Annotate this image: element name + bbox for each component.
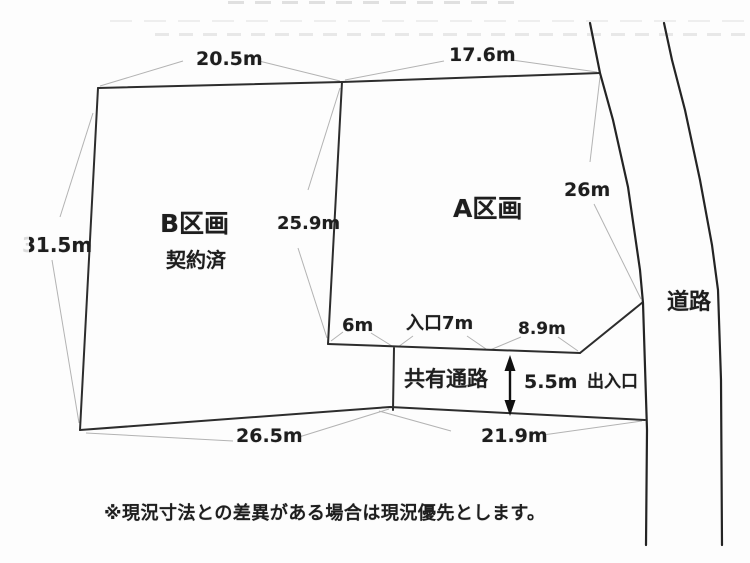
plot-linework bbox=[0, 0, 750, 563]
parcel-a-top-edge bbox=[342, 73, 600, 82]
leader-6m-right bbox=[371, 333, 392, 346]
leader-26-upper bbox=[590, 77, 600, 162]
leader-8-9-right bbox=[558, 337, 578, 351]
dim-ab-boundary: 25.9m bbox=[277, 215, 340, 233]
leader-entrance-left bbox=[398, 336, 413, 347]
leader-21-9-right bbox=[543, 421, 642, 435]
leader-26-lower bbox=[594, 204, 641, 299]
dim-passage-bottom: 21.9m bbox=[481, 427, 548, 446]
leader-25-9-lower bbox=[298, 248, 327, 338]
leader-31-5-upper bbox=[60, 113, 93, 217]
leader-8-9-left bbox=[490, 337, 521, 350]
leader-31-5-lower bbox=[52, 260, 79, 423]
bottom-boundary bbox=[80, 407, 645, 430]
passage-left-edge bbox=[393, 348, 394, 410]
road-line-right bbox=[664, 23, 722, 545]
parcel-a-bottom-edge bbox=[328, 344, 580, 353]
footnote: ※現況寸法との差異がある場合は現況優先とします。 bbox=[104, 505, 546, 523]
leader-17-6-right bbox=[512, 60, 597, 72]
plot-diagram: 20.5m 17.6m 26m 25.9m 31.5m 6m 入口7m 8.9m… bbox=[0, 0, 750, 563]
leader-20-5-left bbox=[100, 61, 183, 86]
dim-a-frontage: 8.9m bbox=[518, 321, 566, 338]
passage-label: 共有通路 bbox=[404, 369, 488, 390]
leader-25-9-upper bbox=[308, 88, 340, 190]
dim-b-bottom: 26.5m bbox=[236, 427, 303, 446]
dim-b-frontage: 6m bbox=[342, 317, 373, 335]
road-lines bbox=[590, 23, 722, 545]
leader-21-9-left bbox=[379, 411, 451, 431]
dim-b-top: 20.5m bbox=[196, 50, 263, 69]
leader-17-6-left bbox=[345, 61, 444, 80]
parcel-a-label: A区画 bbox=[453, 196, 522, 221]
dim-passage-width: 5.5m bbox=[524, 373, 577, 392]
parcel-b-label: B区画 bbox=[160, 211, 229, 236]
scan-fade-artifact bbox=[19, 236, 29, 256]
dim-a-top: 17.6m bbox=[449, 46, 516, 65]
leader-26-5-left bbox=[86, 433, 233, 441]
parcel-a-diagonal-edge bbox=[580, 302, 643, 353]
leader-entrance-right bbox=[467, 336, 486, 349]
leader-20-5-right bbox=[259, 61, 340, 81]
exit-label: 出入口 bbox=[587, 374, 638, 391]
dim-entrance: 入口7m bbox=[406, 315, 473, 333]
dim-a-right: 26m bbox=[564, 181, 610, 200]
dim-b-left: 31.5m bbox=[22, 235, 92, 255]
parcel-b-status: 契約済 bbox=[166, 250, 226, 270]
passage-width-arrow bbox=[505, 355, 516, 416]
road-label: 道路 bbox=[667, 292, 711, 314]
road-line-left bbox=[590, 23, 647, 545]
parcel-b-left-edge bbox=[80, 88, 98, 430]
parcel-b-top-edge bbox=[98, 82, 342, 88]
